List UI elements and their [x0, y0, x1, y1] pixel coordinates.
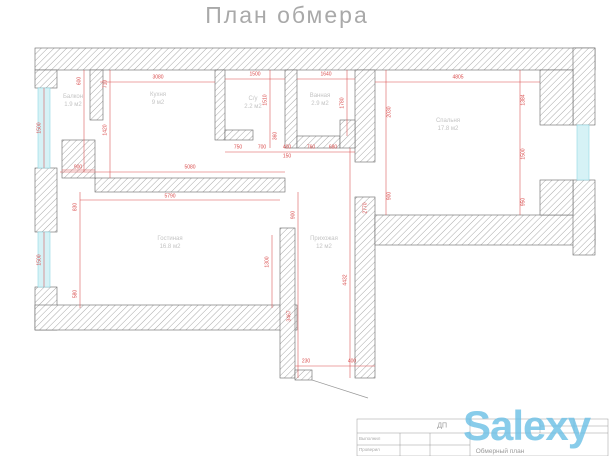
- dimension-label: 1500: [522, 148, 527, 159]
- wall-segment: [35, 48, 595, 70]
- dimension-label: 1500: [249, 73, 260, 78]
- dimension-label: 1500: [38, 122, 43, 133]
- dimension-label: 4805: [452, 76, 463, 81]
- dimension-label: 1300: [266, 256, 271, 267]
- dimension-label: 600: [78, 77, 83, 85]
- dimension-label: 400: [283, 146, 291, 151]
- window: [577, 125, 589, 180]
- wall-segment: [355, 197, 375, 378]
- wall-segment: [573, 48, 595, 125]
- room-label: Прихожая12 м2: [310, 236, 338, 252]
- dimension-label: 5790: [164, 195, 175, 200]
- wall-segment: [340, 120, 355, 148]
- dimension-label: 1780: [341, 97, 346, 108]
- dimension-label: 900: [292, 211, 297, 219]
- wall-segment: [90, 70, 103, 120]
- room-label: С/у2.2 м2: [244, 96, 261, 112]
- room-label: Балкон1.9 м2: [63, 94, 83, 110]
- dimension-label: 1510: [264, 94, 269, 105]
- wall-segment: [35, 305, 297, 330]
- dimension-label: 580: [74, 290, 79, 298]
- dimension-label: 750: [234, 146, 242, 151]
- title-block-code: ДП: [437, 423, 447, 430]
- page-title: План обмера: [205, 2, 368, 29]
- dimension-label: 1420: [104, 124, 109, 135]
- wall-segment: [280, 228, 295, 378]
- wall-segment: [355, 70, 375, 162]
- room-label: Ванная2.9 м2: [310, 93, 331, 109]
- wall-segment: [225, 130, 253, 140]
- wall-segment: [35, 70, 57, 88]
- dimension-label: 1384: [522, 94, 527, 105]
- wall-segment: [215, 70, 225, 140]
- dimension-label: 4432: [344, 274, 349, 285]
- dimension-label: 900: [74, 166, 82, 171]
- dimension-label: 830: [74, 203, 79, 211]
- dimension-label: 950: [522, 198, 527, 206]
- title-block-checker-label: Проверил: [359, 447, 380, 452]
- dimension-label: 2770: [364, 202, 369, 213]
- dimension-label: 3080: [152, 76, 163, 81]
- floor-plan-drawing: [0, 0, 610, 456]
- wall-segment: [95, 178, 285, 192]
- dimension-label: 150: [283, 155, 291, 160]
- wall-segment: [285, 70, 297, 148]
- dimension-label: 2030: [388, 106, 393, 117]
- wall-segment: [375, 215, 595, 245]
- wall-segment: [540, 180, 573, 215]
- dimension-label: 900: [388, 192, 393, 200]
- dimension-label: 1640: [320, 73, 331, 78]
- room-label: Кухня9 м2: [150, 92, 166, 108]
- dimension-label: 680: [329, 146, 337, 151]
- title-block-executor-label: Выполнил: [359, 436, 380, 441]
- dimension-label: 230: [302, 360, 310, 365]
- dimension-label: 710: [104, 80, 109, 88]
- entrance-door-swing: [312, 380, 368, 398]
- floor-plan-page: План обмера Балкон1.9 м2Кухня9 м2С/у2.2 …: [0, 0, 610, 456]
- room-label: Спальня17.8 м2: [436, 118, 460, 134]
- dimension-label: 3467: [288, 310, 293, 321]
- wall-segment: [62, 140, 95, 178]
- wall-segment: [295, 370, 312, 380]
- wall-segment: [540, 70, 573, 125]
- wall-segment: [35, 168, 57, 232]
- wall-segment: [573, 180, 595, 255]
- dimension-label: 400: [348, 360, 356, 365]
- dimension-label: 700: [258, 146, 266, 151]
- room-label: Гостиная16.8 м2: [157, 236, 182, 252]
- dimension-label: 5080: [184, 166, 195, 171]
- dimension-label: 760: [307, 146, 315, 151]
- watermark-logo: Salexy: [463, 402, 590, 450]
- dimension-label: 1500: [38, 254, 43, 265]
- dimension-label: 360: [274, 132, 279, 140]
